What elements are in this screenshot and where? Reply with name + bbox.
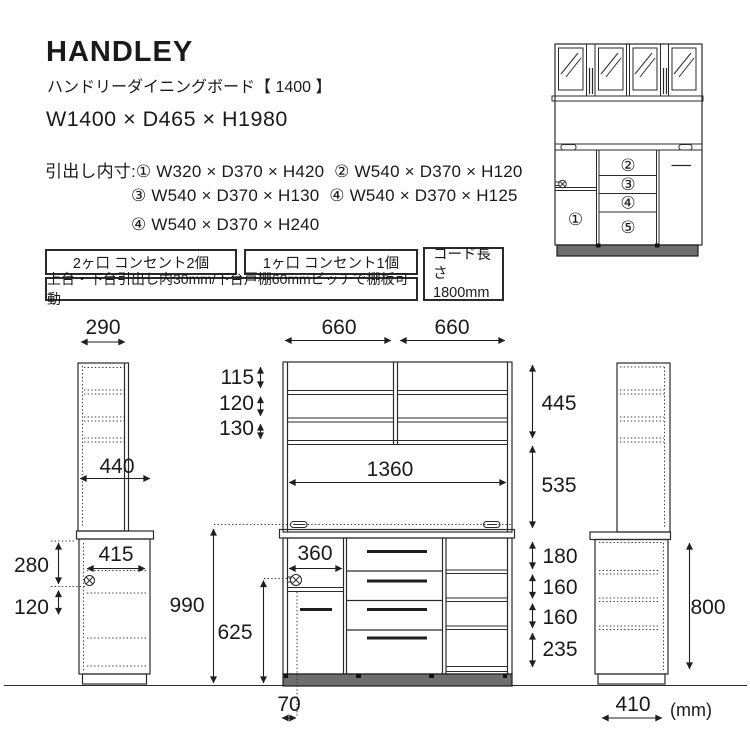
drawer-spec-line-1: 引出し内寸:① W320 × D370 × H420 ② W540 × D370… <box>45 157 523 182</box>
right-open-shelves <box>446 570 508 672</box>
right-counter-top <box>590 532 671 540</box>
spec-sheet: HANDLEY ハンドリーダイニングボード【 1400 】 W1400 × D4… <box>0 0 750 750</box>
dim-115: 115 <box>221 366 261 389</box>
dim-535-label: 535 <box>541 474 576 497</box>
dim-160-a: 160 <box>533 575 578 600</box>
drawer-spec-line-3: ④ W540 × D370 × H240 <box>131 215 319 235</box>
dim-660-left: 660 <box>285 316 391 341</box>
outlet-right <box>679 145 692 151</box>
dim-130: 130 <box>219 417 261 440</box>
compartment-2-label: ② <box>620 156 635 175</box>
drawer-stack <box>347 552 443 639</box>
dim-800-label: 800 <box>690 596 725 619</box>
overview-diagram: ① ② ③ ④ ⑤ <box>548 38 708 262</box>
dim-120-front: 120 <box>219 392 261 416</box>
cord-length-label: コード長さ <box>433 246 502 284</box>
front-counter-top <box>280 530 515 539</box>
dim-415-label: 415 <box>98 543 133 566</box>
compartment-5-label: ⑤ <box>620 218 635 237</box>
drawer-spec-line-2: ③ W540 × D370 × H130 ④ W540 × D370 × H12… <box>131 186 518 206</box>
dim-160-b: 160 <box>533 604 578 630</box>
dim-120-side: 120 <box>14 591 59 620</box>
dim-280: 280 <box>14 541 86 587</box>
counter-section <box>555 144 702 150</box>
dim-660-right: 660 <box>400 316 505 341</box>
lower-storage: ① ② ③ ④ ⑤ <box>555 150 691 245</box>
right-side-view <box>590 363 671 684</box>
note-cord-length: コード長さ 1800mm <box>423 247 504 301</box>
dim-120-side-label: 120 <box>14 596 49 619</box>
dim-800: 800 <box>690 543 726 669</box>
mini-base-plinth <box>557 245 698 256</box>
open-niche <box>288 575 344 592</box>
product-subtitle: ハンドリーダイニングボード【 1400 】 <box>47 73 332 97</box>
dim-360: 360 <box>289 542 342 569</box>
dim-625: 625 <box>217 579 290 684</box>
glass-doors <box>552 44 703 101</box>
dim-235-label: 235 <box>542 638 577 661</box>
dim-70: 70 <box>277 592 300 718</box>
dim-290-label: 290 <box>85 316 120 339</box>
dim-410-label: 410 <box>615 693 650 716</box>
compartment-3-label: ③ <box>620 175 635 194</box>
dim-160-b-label: 160 <box>542 606 577 629</box>
dim-360-label: 360 <box>297 542 332 565</box>
dim-440: 440 <box>80 455 150 479</box>
dim-1360-label: 1360 <box>367 458 414 481</box>
dim-440-label: 440 <box>99 455 134 478</box>
dim-660-left-label: 660 <box>321 316 356 339</box>
dimension-drawing: 290 440 415 280 120 990 625 <box>0 300 750 750</box>
dim-445: 445 <box>533 365 577 438</box>
glass-shine-marks <box>561 53 694 77</box>
dim-535: 535 <box>533 446 577 528</box>
dim-180-label: 180 <box>542 545 577 568</box>
overall-size: W1400 × D465 × H1980 <box>46 107 288 132</box>
dim-130-label: 130 <box>219 417 254 440</box>
dim-415: 415 <box>87 543 145 569</box>
outlet-left <box>561 145 576 151</box>
left-foot <box>83 674 147 684</box>
dim-445-label: 445 <box>541 392 576 415</box>
dim-115-label: 115 <box>221 366 254 389</box>
dim-1360: 1360 <box>289 458 506 483</box>
overview-cabinet: ① ② ③ ④ ⑤ <box>552 44 703 256</box>
front-base-plinth <box>283 674 512 686</box>
left-counter-top <box>77 531 154 539</box>
note-shelf-pitch: 上台・下台引出し内30mm/下台戸棚60mmピッチで棚板可動 <box>45 277 418 301</box>
dim-625-label: 625 <box>217 621 252 644</box>
dim-410: 410 <box>602 693 662 718</box>
left-side-view <box>77 363 154 684</box>
front-view <box>280 362 515 686</box>
dim-660-right-label: 660 <box>434 316 469 339</box>
unit-label: (mm) <box>670 700 712 720</box>
dim-235: 235 <box>533 633 578 667</box>
dim-160-a-label: 160 <box>542 576 577 599</box>
product-title: HANDLEY <box>46 36 193 69</box>
compartment-4-label: ④ <box>620 194 635 213</box>
dim-990-label: 990 <box>169 594 204 617</box>
dim-290: 290 <box>81 316 125 342</box>
compartment-1-label: ① <box>568 210 583 229</box>
dim-180: 180 <box>533 542 578 569</box>
dim-990: 990 <box>169 525 511 684</box>
right-foot <box>598 674 665 684</box>
dim-280-label: 280 <box>14 554 49 577</box>
dim-120-front-label: 120 <box>219 392 254 415</box>
